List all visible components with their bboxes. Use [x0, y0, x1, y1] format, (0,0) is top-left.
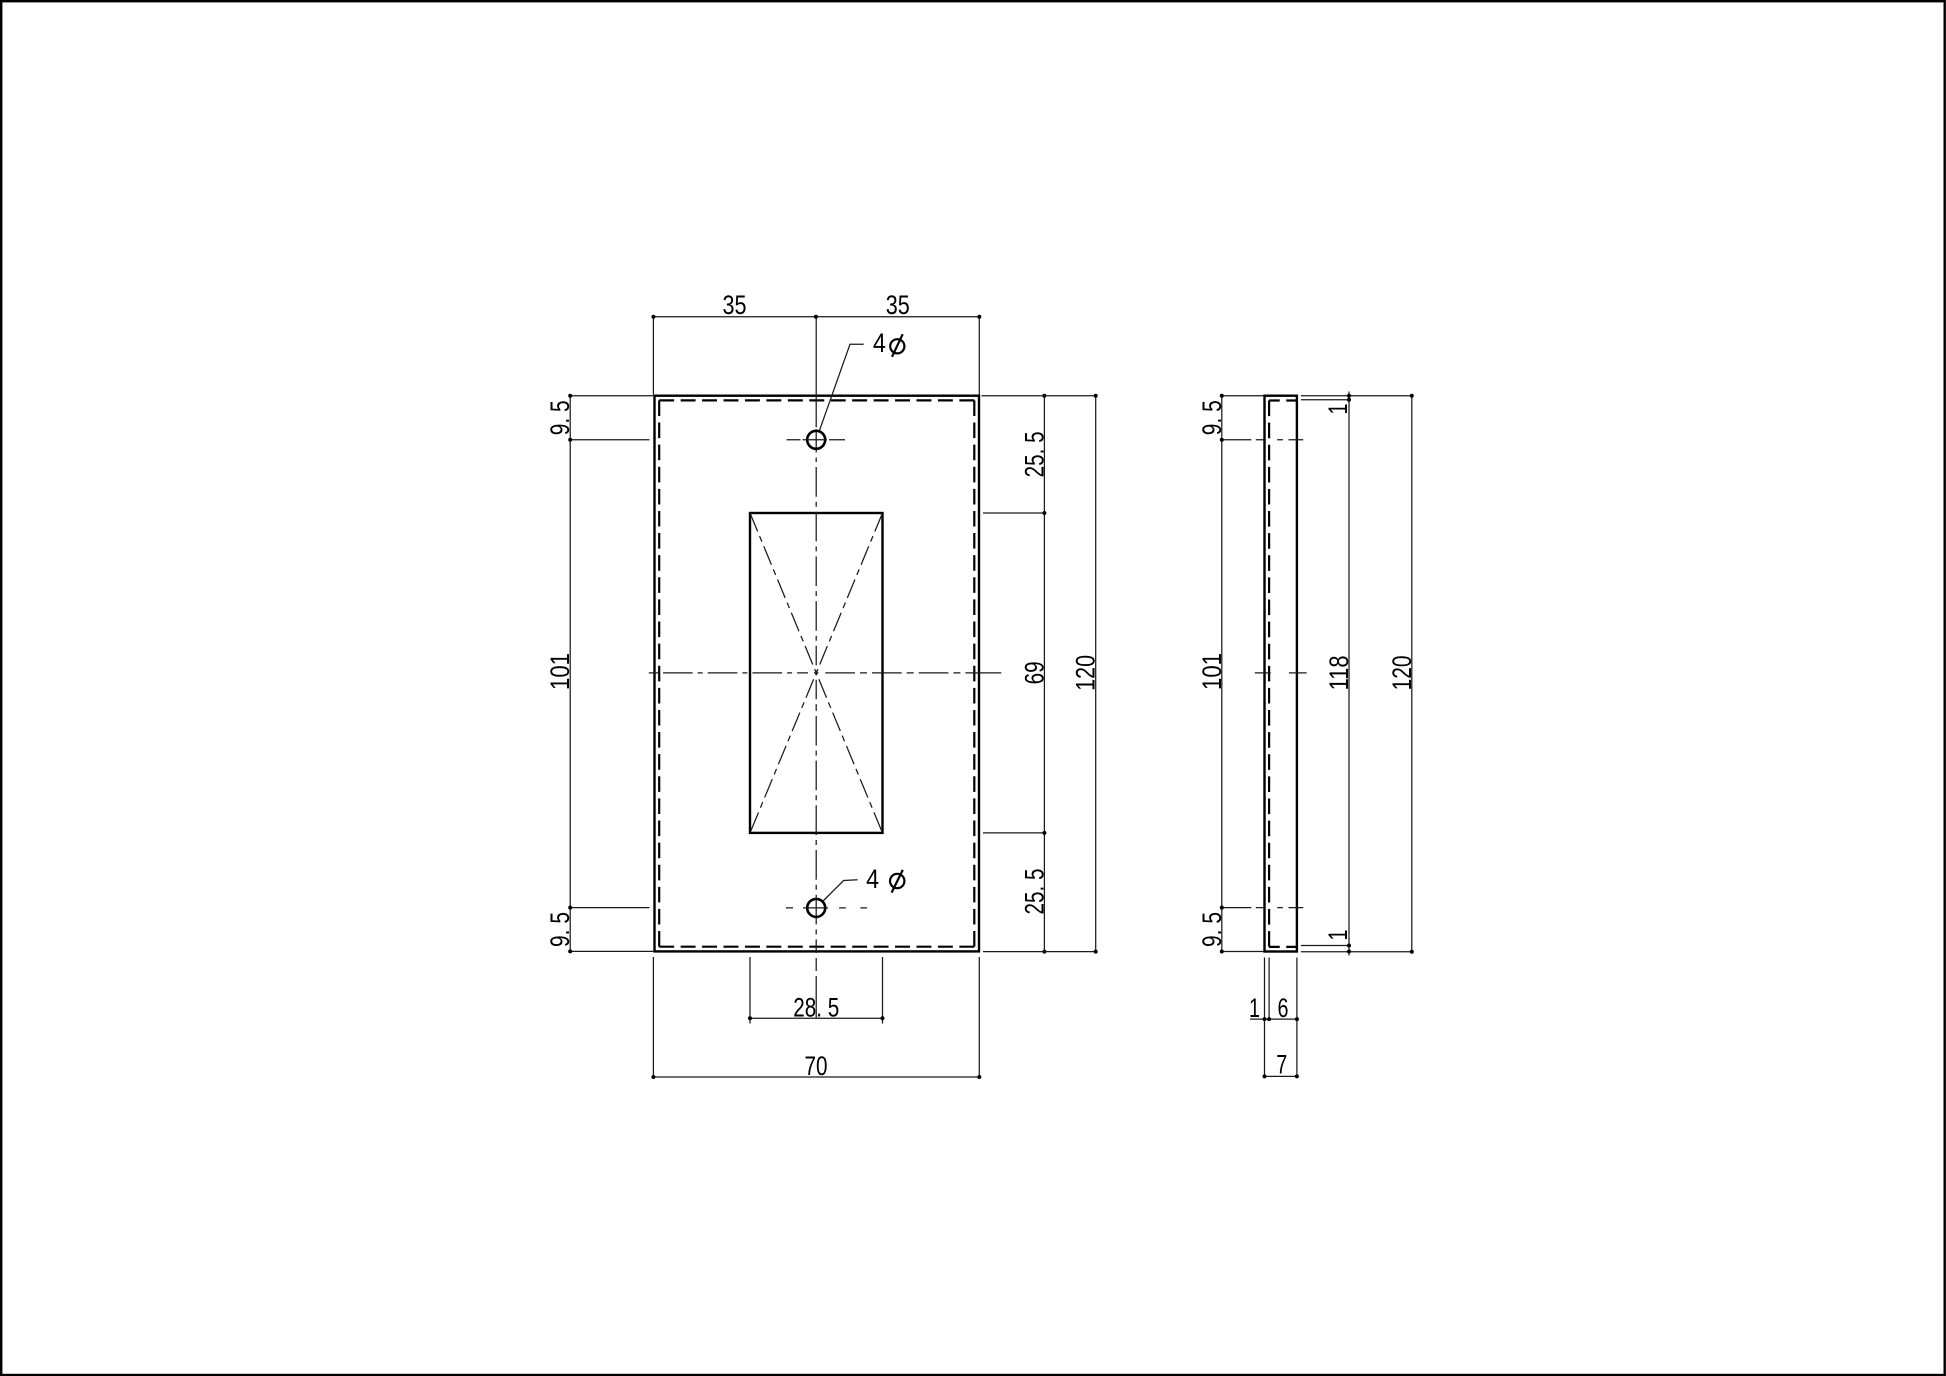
svg-text:35: 35	[886, 290, 910, 320]
svg-text:120: 120	[1071, 655, 1101, 691]
svg-text:1: 1	[1323, 930, 1353, 941]
svg-text:1: 1	[1249, 993, 1260, 1023]
svg-text:118: 118	[1324, 655, 1354, 690]
svg-text:101: 101	[545, 653, 575, 690]
svg-text:1: 1	[1323, 404, 1353, 415]
svg-text:25. 5: 25. 5	[1019, 869, 1049, 915]
svg-text:28. 5: 28. 5	[793, 992, 839, 1022]
svg-text:4: 4	[866, 864, 879, 894]
svg-text:4: 4	[873, 328, 886, 358]
svg-text:25. 5: 25. 5	[1019, 431, 1049, 477]
svg-text:9. 5: 9. 5	[1197, 912, 1227, 947]
svg-text:70: 70	[805, 1051, 828, 1081]
svg-text:7: 7	[1276, 1049, 1287, 1079]
svg-text:101: 101	[1197, 653, 1227, 690]
svg-text:9. 5: 9. 5	[545, 400, 575, 435]
svg-text:9. 5: 9. 5	[1197, 400, 1227, 435]
svg-text:120: 120	[1387, 655, 1417, 690]
svg-text:69: 69	[1019, 661, 1049, 684]
svg-text:9. 5: 9. 5	[545, 912, 575, 947]
svg-text:6: 6	[1278, 993, 1289, 1023]
svg-text:35: 35	[723, 290, 747, 320]
